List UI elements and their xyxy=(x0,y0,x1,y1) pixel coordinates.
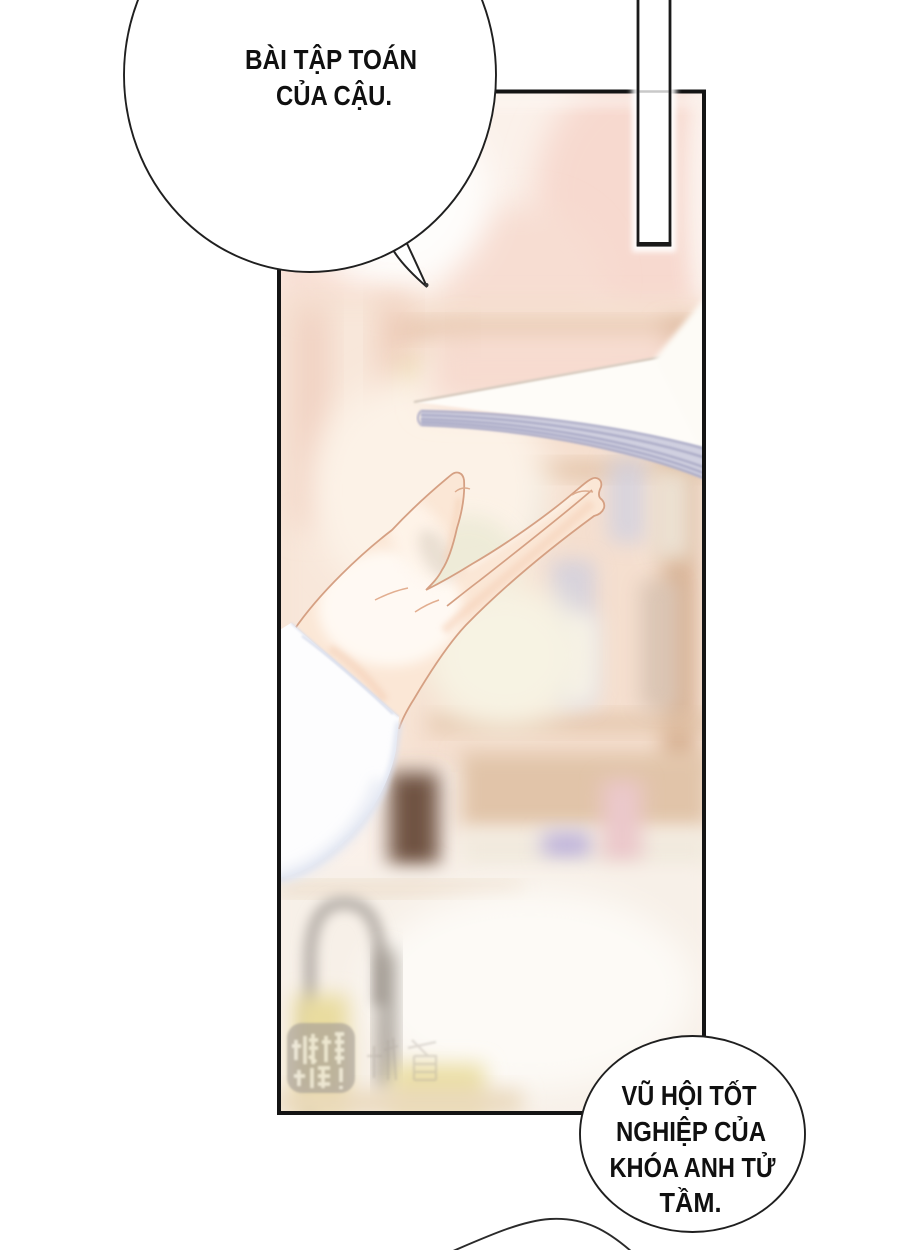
svg-text:VŨ HỘI TỐT: VŨ HỘI TỐT xyxy=(622,1079,757,1111)
svg-text:CỦA CẬU.: CỦA CẬU. xyxy=(276,79,392,111)
svg-text:BÀI TẬP TOÁN: BÀI TẬP TOÁN xyxy=(245,44,417,75)
svg-text:TẦM.: TẦM. xyxy=(660,1187,722,1218)
svg-text:KHÓA ANH TỬ: KHÓA ANH TỬ xyxy=(610,1151,777,1183)
svg-text:NGHIỆP CỦA: NGHIỆP CỦA xyxy=(616,1115,766,1147)
